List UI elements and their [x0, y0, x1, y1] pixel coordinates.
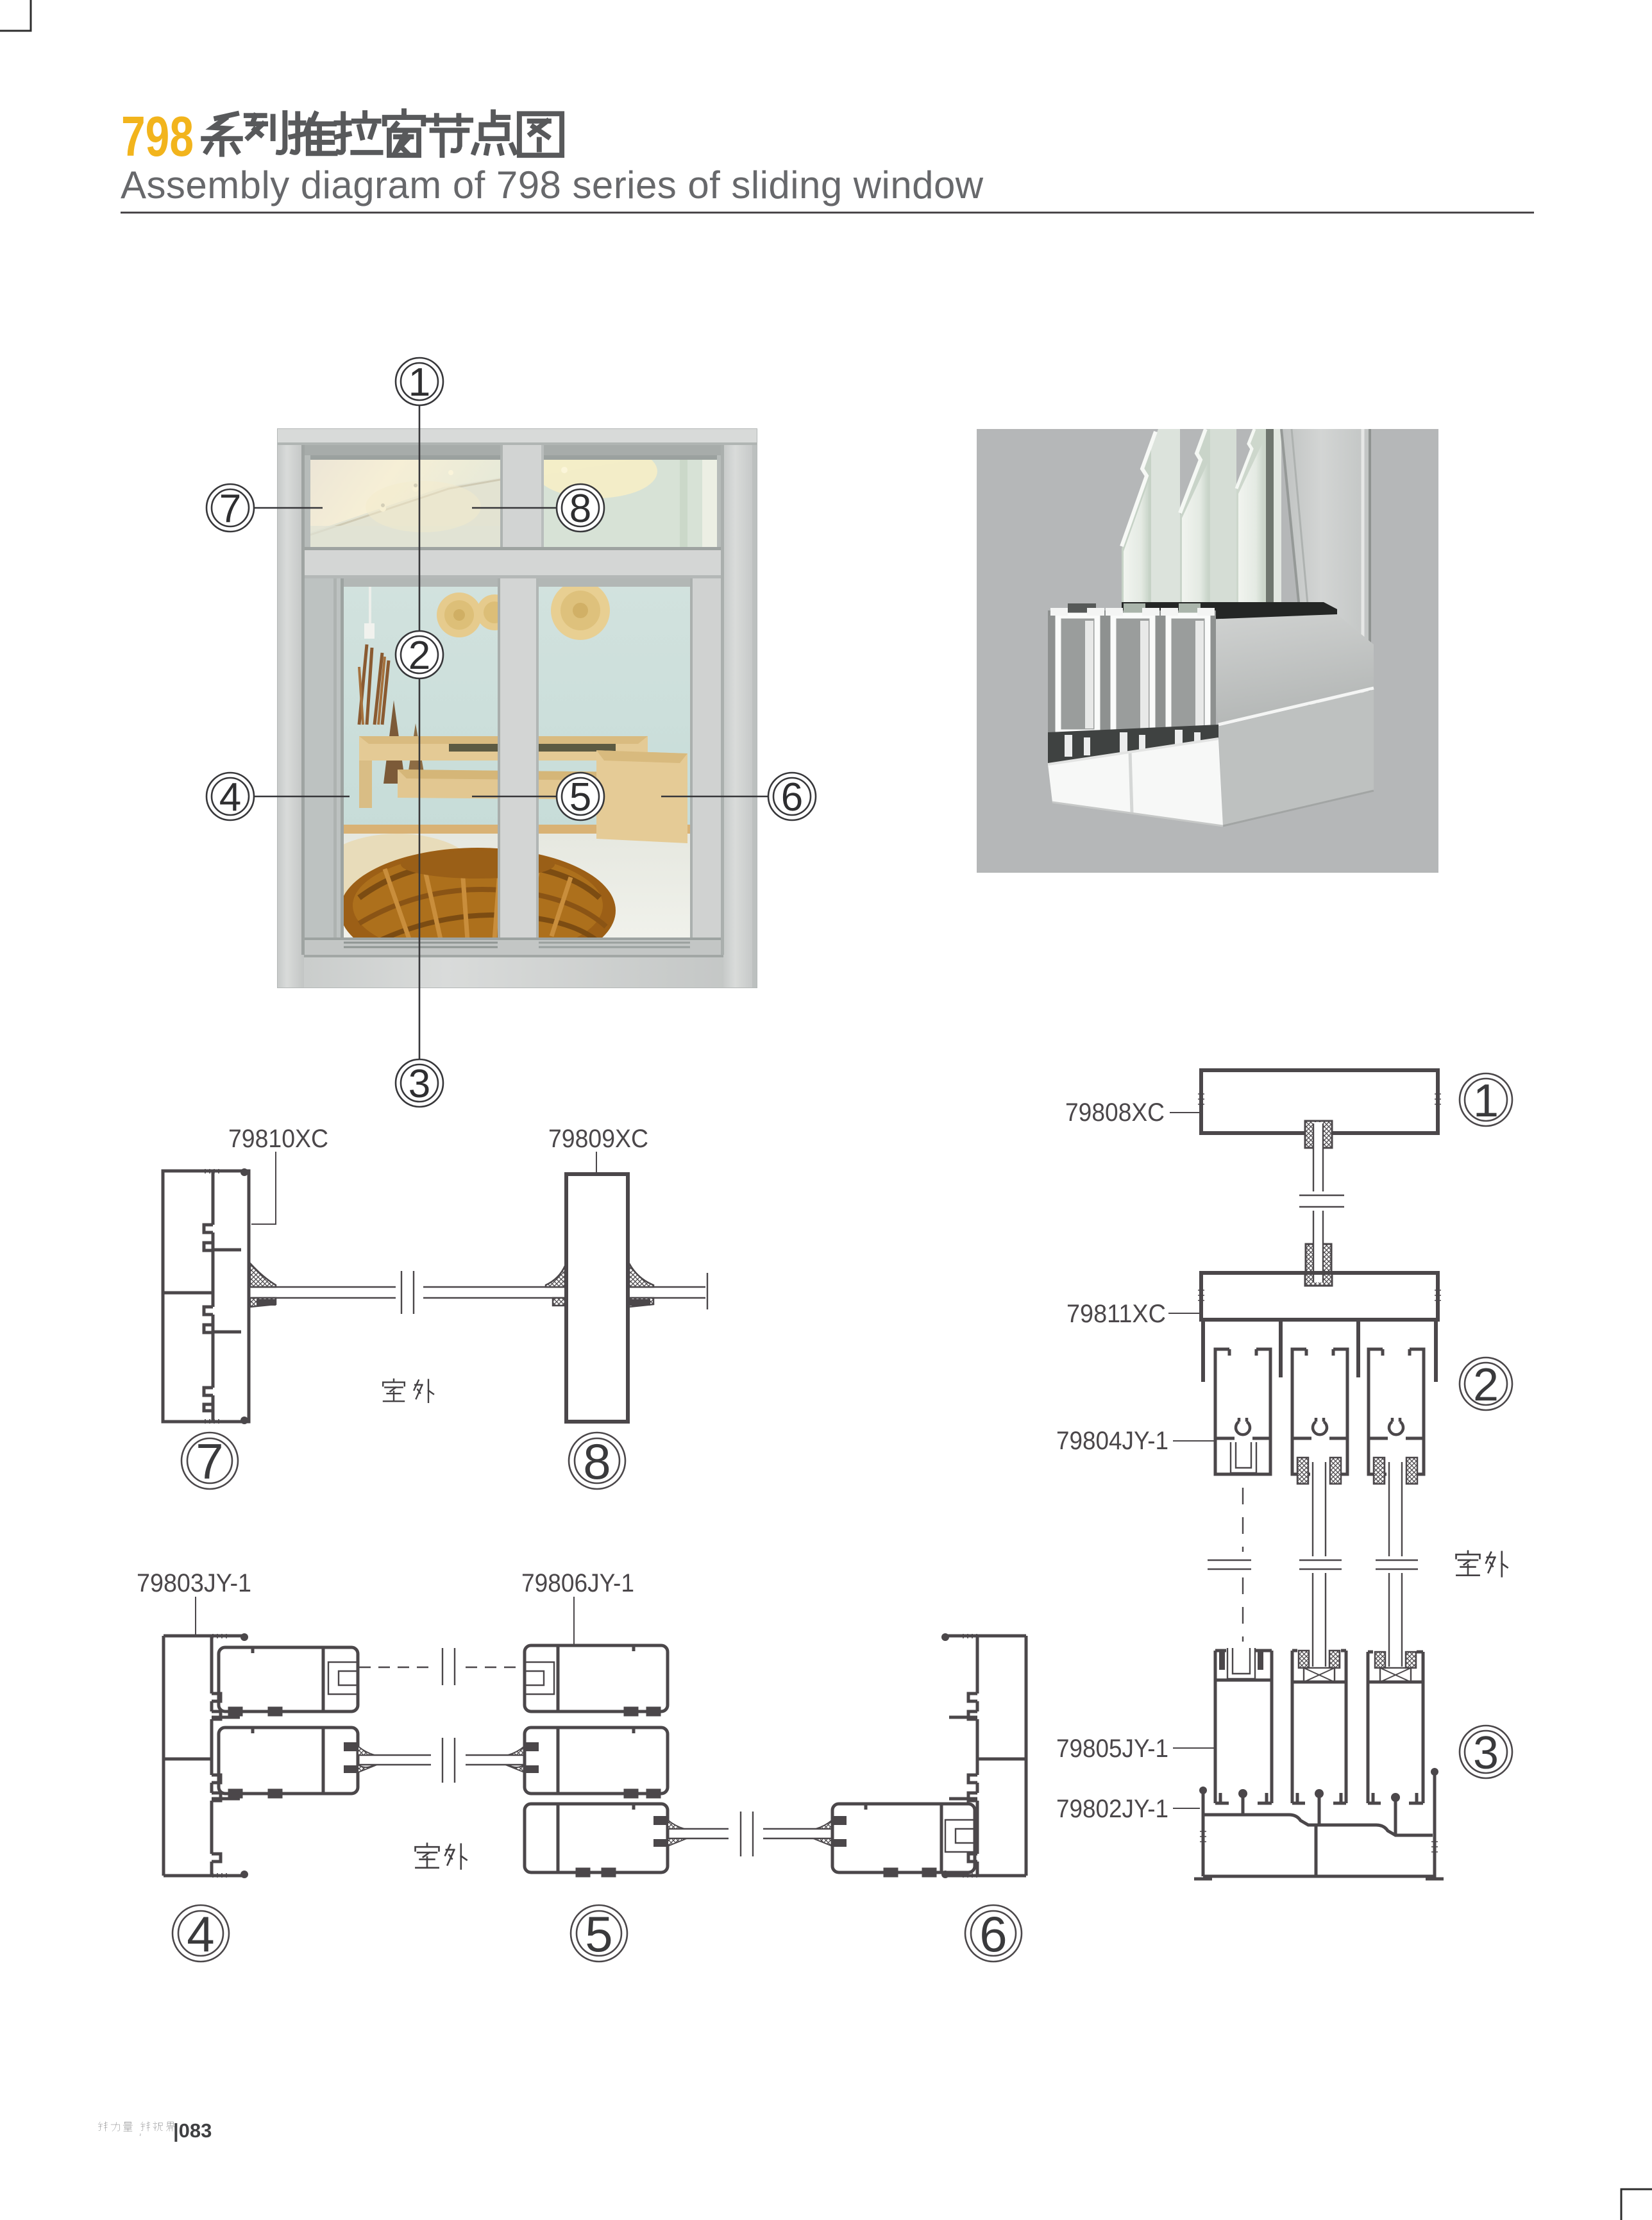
- svg-text:7: 7: [219, 487, 241, 531]
- svg-text:79809XC: 79809XC: [548, 1125, 648, 1153]
- svg-text:7: 7: [196, 1433, 223, 1490]
- svg-text:798: 798: [121, 105, 194, 168]
- svg-text:4: 4: [187, 1906, 214, 1962]
- svg-text:3: 3: [1473, 1728, 1499, 1779]
- svg-text:6: 6: [781, 775, 803, 820]
- svg-text:79804JY-1: 79804JY-1: [1056, 1427, 1168, 1455]
- svg-text:4: 4: [219, 775, 241, 820]
- svg-text:5: 5: [585, 1906, 612, 1962]
- svg-text:Assembly diagram of 798 series: Assembly diagram of 798 series of slidin…: [121, 164, 984, 206]
- svg-text:5: 5: [569, 775, 591, 820]
- svg-text:3: 3: [409, 1062, 430, 1106]
- svg-text:2: 2: [409, 634, 430, 678]
- svg-text:79806JY-1: 79806JY-1: [521, 1569, 634, 1597]
- svg-text:79802JY-1: 79802JY-1: [1056, 1795, 1168, 1823]
- svg-text:79811XC: 79811XC: [1066, 1300, 1166, 1328]
- svg-text:79810XC: 79810XC: [228, 1125, 328, 1153]
- svg-text:79805JY-1: 79805JY-1: [1056, 1735, 1168, 1763]
- svg-text:79803JY-1: 79803JY-1: [137, 1569, 251, 1597]
- svg-text:79808XC: 79808XC: [1065, 1098, 1165, 1127]
- svg-text:1: 1: [1473, 1075, 1499, 1127]
- svg-text:|083: |083: [173, 2119, 212, 2142]
- svg-text:2: 2: [1473, 1359, 1499, 1411]
- svg-text:8: 8: [583, 1433, 611, 1490]
- svg-text:8: 8: [569, 487, 591, 531]
- svg-text:1: 1: [409, 360, 430, 405]
- svg-text:6: 6: [979, 1906, 1007, 1962]
